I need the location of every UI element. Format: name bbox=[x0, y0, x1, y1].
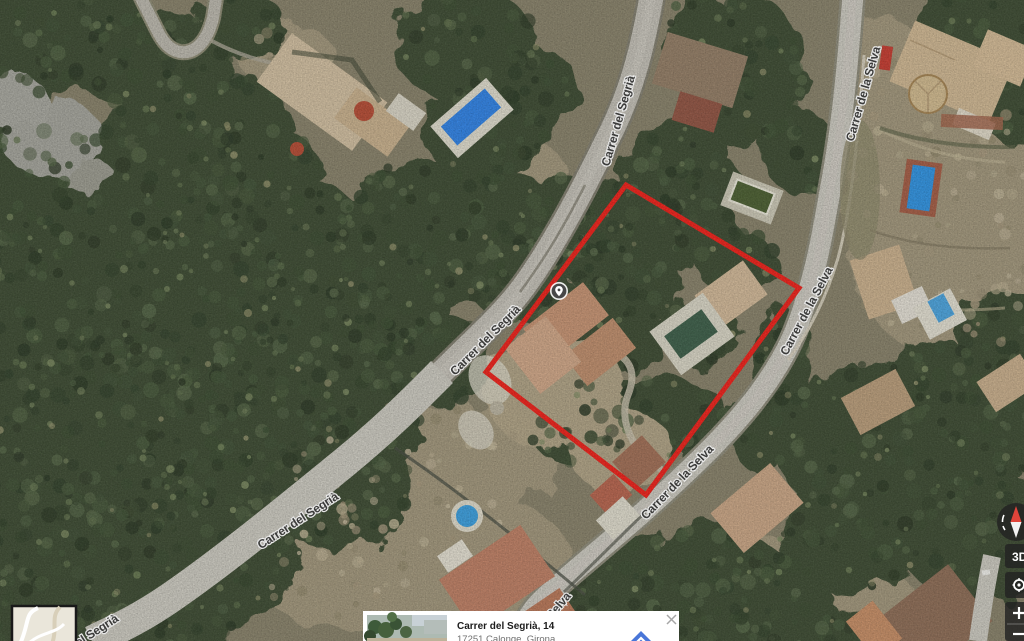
svg-text:17251 Calonge, Girona: 17251 Calonge, Girona bbox=[457, 634, 556, 641]
svg-text:3D: 3D bbox=[1012, 550, 1024, 564]
svg-text:Carrer del Segrià, 14: Carrer del Segrià, 14 bbox=[457, 621, 555, 632]
